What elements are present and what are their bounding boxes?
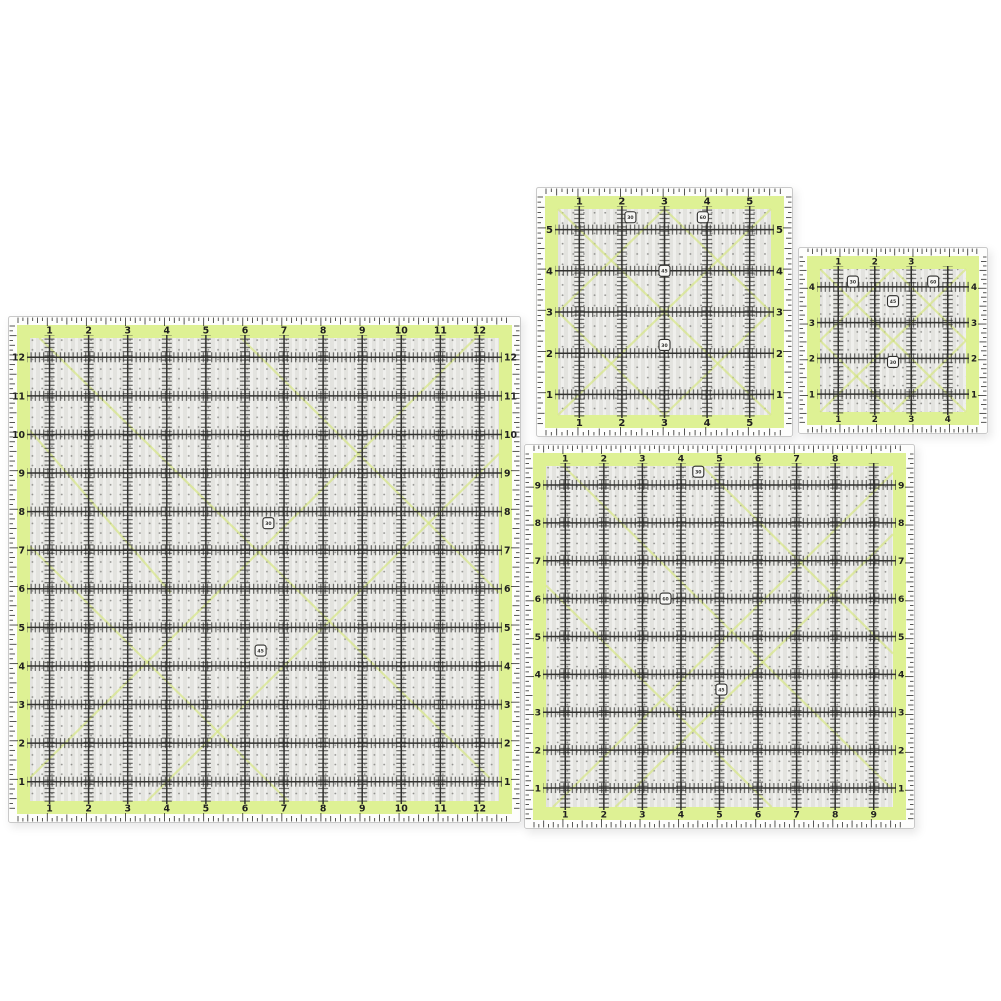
svg-text:6: 6 xyxy=(755,454,761,465)
svg-text:2: 2 xyxy=(776,349,783,360)
svg-text:5: 5 xyxy=(716,454,722,465)
svg-text:1: 1 xyxy=(835,415,841,425)
svg-text:6: 6 xyxy=(898,594,904,605)
svg-text:1: 1 xyxy=(562,454,568,465)
svg-text:10: 10 xyxy=(12,430,26,441)
svg-text:1: 1 xyxy=(546,390,553,401)
svg-text:11: 11 xyxy=(504,391,517,402)
svg-text:2: 2 xyxy=(601,454,607,465)
svg-text:7: 7 xyxy=(898,556,904,567)
svg-text:2: 2 xyxy=(971,355,977,365)
svg-text:9: 9 xyxy=(359,326,366,337)
svg-text:4: 4 xyxy=(678,809,685,820)
svg-text:2: 2 xyxy=(898,745,904,756)
svg-text:30: 30 xyxy=(890,360,896,366)
svg-text:3: 3 xyxy=(546,308,553,319)
svg-text:7: 7 xyxy=(281,326,288,337)
ruler-grid-graphic: 30604530123123443214321 xyxy=(798,247,988,434)
svg-text:7: 7 xyxy=(793,809,799,820)
svg-text:9: 9 xyxy=(871,809,877,820)
svg-text:1: 1 xyxy=(776,390,783,401)
quilting-ruler-4-5-inch: 30604530123123443214321 xyxy=(798,247,988,434)
svg-text:30: 30 xyxy=(627,215,633,221)
ruler-grid-graphic: 3060453012345123455432154321 xyxy=(536,187,793,437)
svg-text:3: 3 xyxy=(908,258,914,268)
svg-text:6: 6 xyxy=(242,326,249,337)
svg-text:8: 8 xyxy=(18,507,25,518)
svg-text:4: 4 xyxy=(535,670,542,681)
svg-text:4: 4 xyxy=(704,418,711,429)
svg-text:11: 11 xyxy=(434,326,447,337)
svg-text:6: 6 xyxy=(242,803,249,814)
svg-text:9: 9 xyxy=(504,468,511,479)
svg-text:1: 1 xyxy=(46,326,53,337)
svg-text:8: 8 xyxy=(535,518,541,529)
svg-text:2: 2 xyxy=(504,739,511,750)
svg-text:4: 4 xyxy=(898,670,905,681)
svg-text:60: 60 xyxy=(930,279,936,285)
svg-text:60: 60 xyxy=(700,215,706,221)
svg-text:5: 5 xyxy=(776,225,783,236)
svg-text:4: 4 xyxy=(776,266,783,277)
svg-text:12: 12 xyxy=(12,353,25,364)
ruler-grid-graphic: 3045601234567812345678998765432198765432… xyxy=(524,444,915,829)
svg-text:5: 5 xyxy=(504,623,511,634)
svg-text:10: 10 xyxy=(395,326,409,337)
svg-text:2: 2 xyxy=(85,803,92,814)
svg-text:8: 8 xyxy=(898,518,904,529)
svg-text:3: 3 xyxy=(971,319,977,329)
svg-text:5: 5 xyxy=(18,623,25,634)
svg-text:9: 9 xyxy=(359,803,366,814)
svg-text:5: 5 xyxy=(203,803,210,814)
svg-text:3: 3 xyxy=(661,418,668,429)
quilting-ruler-9-5-inch: 3045601234567812345678998765432198765432… xyxy=(524,444,915,829)
svg-text:1: 1 xyxy=(576,197,583,208)
product-photo-quilting-ruler-set: 3045123456789101112123456789101112121110… xyxy=(0,0,1001,1001)
svg-text:9: 9 xyxy=(18,468,25,479)
svg-text:10: 10 xyxy=(395,803,409,814)
svg-text:6: 6 xyxy=(504,584,511,595)
svg-text:3: 3 xyxy=(776,308,783,319)
svg-text:1: 1 xyxy=(18,777,25,788)
svg-text:11: 11 xyxy=(434,803,447,814)
svg-text:5: 5 xyxy=(203,326,210,337)
svg-text:1: 1 xyxy=(898,783,904,794)
svg-text:30: 30 xyxy=(661,343,667,349)
svg-text:5: 5 xyxy=(716,809,722,820)
svg-text:45: 45 xyxy=(257,648,263,654)
svg-text:3: 3 xyxy=(661,197,668,208)
svg-text:8: 8 xyxy=(320,326,327,337)
svg-text:1: 1 xyxy=(971,390,977,400)
svg-text:1: 1 xyxy=(562,809,568,820)
svg-text:6: 6 xyxy=(535,594,541,605)
svg-text:3: 3 xyxy=(535,708,541,719)
svg-text:1: 1 xyxy=(576,418,583,429)
svg-text:3: 3 xyxy=(809,319,815,329)
svg-text:3: 3 xyxy=(124,326,131,337)
svg-text:12: 12 xyxy=(473,326,486,337)
svg-text:1: 1 xyxy=(504,777,511,788)
svg-text:9: 9 xyxy=(898,480,904,491)
svg-text:7: 7 xyxy=(793,454,799,465)
svg-text:30: 30 xyxy=(695,469,701,475)
svg-text:4: 4 xyxy=(678,454,685,465)
svg-text:12: 12 xyxy=(473,803,486,814)
svg-text:6: 6 xyxy=(18,584,25,595)
svg-text:2: 2 xyxy=(18,739,25,750)
svg-text:5: 5 xyxy=(535,632,541,643)
svg-text:2: 2 xyxy=(618,197,625,208)
quilting-ruler-6-inch: 3060453012345123455432154321 xyxy=(536,187,793,437)
svg-text:3: 3 xyxy=(639,809,645,820)
svg-text:2: 2 xyxy=(618,418,625,429)
svg-text:8: 8 xyxy=(504,507,511,518)
svg-text:12: 12 xyxy=(504,353,517,364)
svg-text:2: 2 xyxy=(872,258,878,268)
svg-text:1: 1 xyxy=(809,390,815,400)
svg-text:30: 30 xyxy=(265,521,271,527)
svg-text:45: 45 xyxy=(661,269,667,275)
svg-text:4: 4 xyxy=(164,326,171,337)
svg-text:1: 1 xyxy=(46,803,53,814)
svg-text:7: 7 xyxy=(535,556,541,567)
svg-text:4: 4 xyxy=(546,266,553,277)
svg-text:3: 3 xyxy=(639,454,645,465)
svg-text:4: 4 xyxy=(809,283,815,293)
svg-text:4: 4 xyxy=(18,661,25,672)
svg-text:11: 11 xyxy=(12,391,25,402)
svg-text:3: 3 xyxy=(898,708,904,719)
svg-text:4: 4 xyxy=(704,197,711,208)
svg-text:2: 2 xyxy=(809,355,815,365)
svg-text:45: 45 xyxy=(890,299,896,305)
svg-text:2: 2 xyxy=(546,349,553,360)
svg-text:3: 3 xyxy=(908,415,914,425)
svg-text:1: 1 xyxy=(835,258,841,268)
svg-text:60: 60 xyxy=(662,596,668,602)
svg-text:8: 8 xyxy=(832,454,838,465)
svg-text:8: 8 xyxy=(320,803,327,814)
svg-text:7: 7 xyxy=(504,546,511,557)
svg-text:2: 2 xyxy=(601,809,607,820)
svg-text:7: 7 xyxy=(281,803,288,814)
svg-text:4: 4 xyxy=(164,803,171,814)
svg-text:3: 3 xyxy=(504,700,511,711)
svg-text:30: 30 xyxy=(850,279,856,285)
quilting-ruler-12-inch: 3045123456789101112123456789101112121110… xyxy=(8,316,521,823)
svg-text:1: 1 xyxy=(535,783,541,794)
svg-text:8: 8 xyxy=(832,809,838,820)
svg-text:2: 2 xyxy=(872,415,878,425)
svg-text:45: 45 xyxy=(718,687,724,693)
svg-text:6: 6 xyxy=(755,809,761,820)
svg-text:5: 5 xyxy=(746,418,753,429)
svg-text:3: 3 xyxy=(18,700,25,711)
svg-text:5: 5 xyxy=(898,632,904,643)
svg-text:4: 4 xyxy=(504,661,511,672)
ruler-grid-graphic: 3045123456789101112123456789101112121110… xyxy=(8,316,521,823)
svg-text:9: 9 xyxy=(535,480,541,491)
svg-text:2: 2 xyxy=(535,745,541,756)
svg-text:4: 4 xyxy=(971,283,977,293)
svg-text:4: 4 xyxy=(945,415,951,425)
svg-text:3: 3 xyxy=(124,803,131,814)
svg-text:2: 2 xyxy=(85,326,92,337)
svg-text:7: 7 xyxy=(18,546,25,557)
svg-text:10: 10 xyxy=(504,430,518,441)
svg-text:5: 5 xyxy=(546,225,553,236)
svg-text:5: 5 xyxy=(746,197,753,208)
